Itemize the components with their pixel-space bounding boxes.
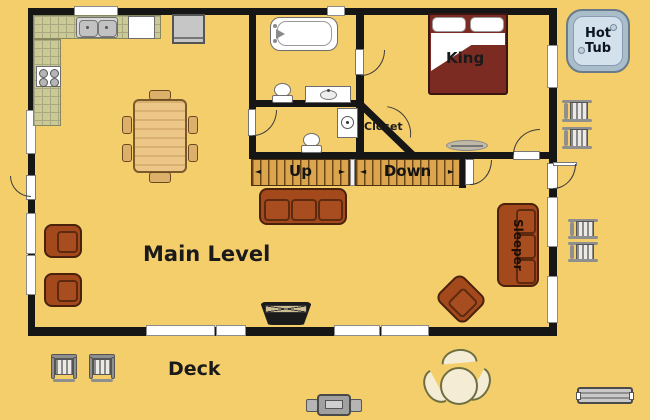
deck-label: Deck (168, 358, 221, 380)
king-bed-label: King (446, 49, 484, 67)
vanity-sink-icon (305, 86, 351, 103)
window-right-king (547, 45, 558, 88)
dining-chair (122, 116, 132, 134)
patio-table (440, 367, 478, 405)
dining-chair (188, 116, 198, 134)
king-bed: King (428, 13, 508, 95)
bathroom-door-arc (361, 50, 385, 76)
dining-table (133, 99, 187, 173)
hot-tub-jet-icon (610, 24, 617, 31)
sleeper-sofa-label: Sleeper (499, 205, 537, 285)
dining-chair (122, 144, 132, 162)
patio-chair-icon (440, 347, 477, 364)
stairs-up-arrow-right: ► (339, 167, 345, 176)
stair-door-arc (470, 160, 492, 185)
stove-icon (36, 66, 61, 87)
rocking-chair-icon (568, 218, 598, 240)
washer-icon (337, 108, 358, 138)
armchair (44, 273, 82, 307)
closet-label: Closet (364, 120, 403, 133)
sofa (259, 188, 347, 225)
dining-chair (188, 144, 198, 162)
hot-tub-label-line1: Hot (585, 26, 611, 41)
sleeper-sofa: Sleeper (497, 203, 539, 287)
rocking-chair-icon (562, 126, 592, 150)
grill-icon (306, 394, 362, 419)
hot-tub: Hot Tub (566, 9, 630, 73)
tv-icon (260, 302, 312, 325)
stairs-up-label: Up (252, 162, 349, 180)
window-left-3 (26, 255, 36, 295)
window-bottom-1 (146, 325, 215, 336)
armchair (44, 224, 82, 258)
dining-chair (149, 172, 171, 183)
window-bottom-4 (381, 325, 429, 336)
wc-door-arc (253, 110, 277, 136)
entry-door-left-arc (10, 176, 31, 197)
wall-bottom (28, 327, 557, 336)
window-right-mid (547, 197, 558, 247)
deck-rocker-icon (88, 354, 116, 383)
pillow-icon (470, 17, 504, 32)
rocking-chair-icon (568, 241, 598, 263)
deck-door-arc (553, 164, 576, 189)
level-label: Main Level (143, 242, 270, 266)
dishwasher-icon (128, 16, 155, 39)
window-top-small (327, 6, 345, 16)
patio-bench (577, 387, 633, 404)
deck-rocker-icon (50, 354, 78, 383)
window-right-low (547, 276, 558, 323)
wall-hall (249, 152, 557, 159)
stairs-down: Down ◄ ► (355, 159, 460, 186)
dining-chair (149, 90, 171, 100)
ceiling-fan-icon (446, 140, 488, 151)
kitchen-sink-icon (76, 17, 118, 38)
stairs-up-arrow-left: ◄ (255, 167, 261, 176)
window-left-2 (26, 213, 36, 254)
wall-bathroom-left (249, 8, 256, 159)
king-room-door-arc (513, 129, 540, 155)
hot-tub-label-line2: Tub (585, 41, 611, 56)
bathtub-icon (270, 17, 338, 51)
stairs-down-arrow-left: ◄ (360, 167, 366, 176)
stairs-down-arrow-right: ► (448, 167, 454, 176)
pillow-icon (432, 17, 466, 32)
refrigerator-icon (172, 14, 205, 44)
rocking-chair-icon (562, 99, 592, 123)
hot-tub-jet-icon (578, 47, 585, 54)
floor-plan: King Closet Up ◄ ► Down ◄ ► Sleeper Ma (0, 0, 650, 420)
armchair-angled (434, 272, 488, 326)
window-bottom-3 (334, 325, 380, 336)
window-bottom-2 (216, 325, 246, 336)
stairs-up: Up ◄ ► (251, 159, 350, 186)
stairs-down-label: Down (356, 162, 459, 180)
